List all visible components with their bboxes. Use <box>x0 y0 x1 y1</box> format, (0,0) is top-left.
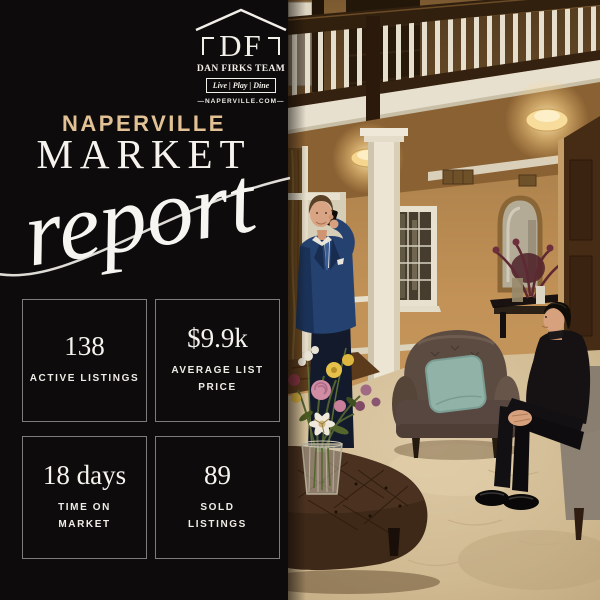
stat-card-time-on-market: 18 days TIME ON MARKET <box>22 436 147 559</box>
stat-card-sold-listings: 89 SOLD LISTINGS <box>155 436 280 559</box>
house-roof-icon: DF <box>192 6 290 62</box>
stat-label: TIME ON MARKET <box>58 499 111 534</box>
tagline: Live | Play | Dine <box>206 78 276 93</box>
photo-edge-shadow <box>288 0 306 600</box>
right-bracket-icon <box>268 38 279 55</box>
df-monogram: DF <box>219 28 263 63</box>
stat-value: $9.9k <box>187 325 248 352</box>
stat-label: ACTIVE LISTINGS <box>30 370 140 388</box>
glass-vase <box>302 441 342 494</box>
stats-grid: 138 ACTIVE LISTINGS $9.9k AVERAGE LIST P… <box>22 299 280 559</box>
stat-value: 18 days <box>43 462 126 489</box>
market-report-graphic: DF DAN FIRKS TEAM Live | Play | Dine —NA… <box>0 0 600 600</box>
left-bracket-icon <box>203 38 214 55</box>
stat-label: SOLD LISTINGS <box>188 499 247 534</box>
stat-value: 138 <box>64 333 105 360</box>
script-headline: report <box>0 148 296 288</box>
accent-pillow <box>425 355 487 413</box>
website: —NAPERVILLE.COM— <box>192 98 290 105</box>
home-interior-photo <box>288 0 600 600</box>
script-word: report <box>17 147 264 286</box>
stat-card-active-listings: 138 ACTIVE LISTINGS <box>22 299 147 422</box>
stat-label: AVERAGE LIST PRICE <box>171 362 263 397</box>
stat-value: 89 <box>204 462 231 489</box>
team-name: DAN FIRKS TEAM <box>192 64 290 74</box>
brand-logo: DF DAN FIRKS TEAM Live | Play | Dine —NA… <box>192 6 290 105</box>
stat-card-average-list-price: $9.9k AVERAGE LIST PRICE <box>155 299 280 422</box>
